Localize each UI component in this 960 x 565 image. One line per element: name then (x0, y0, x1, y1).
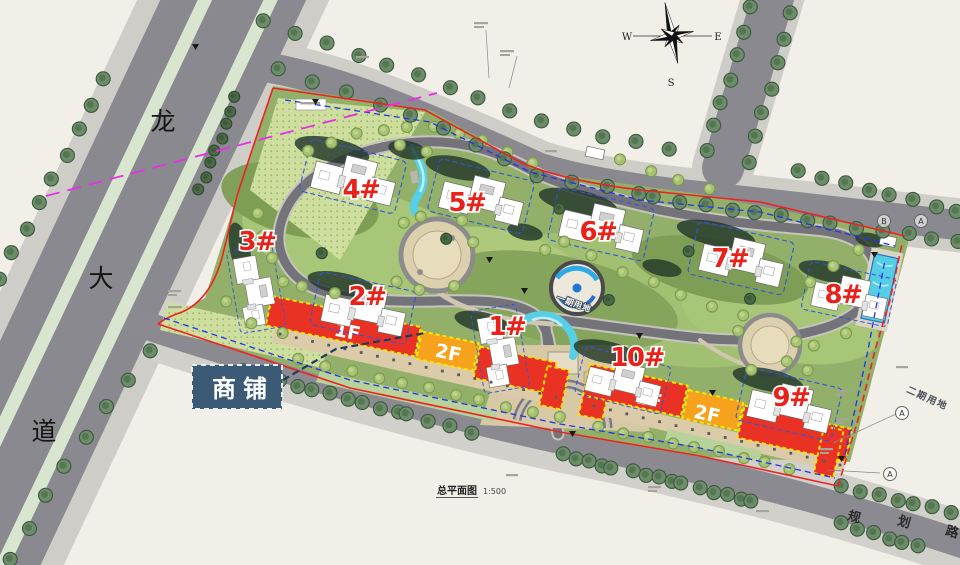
grid-marker-a3: A (887, 470, 893, 479)
compass-west-label: W (622, 32, 633, 43)
building-label-3: 3# (239, 227, 277, 257)
grid-marker-a2: A (899, 409, 905, 418)
grid-marker-a1: A (918, 217, 924, 226)
site-plan: 1F 2F 1F 2F (0, 0, 960, 565)
building-label-2: 2# (349, 282, 387, 312)
building-label-9: 9# (773, 383, 811, 413)
building-label-5: 5# (449, 188, 487, 218)
compass-south-label: S (668, 78, 675, 89)
west-avenue-char-2: 大 (88, 264, 113, 293)
building-label-4: 4# (343, 175, 381, 205)
scale-ratio: 1:500 (483, 487, 506, 496)
building-label-1: 1# (489, 312, 527, 342)
scale-title: 总平面图 (437, 484, 477, 497)
west-avenue-char-1: 龙 (150, 107, 175, 136)
building-label-10: 10# (610, 343, 664, 373)
scale-caption: 总平面图 1:500 (436, 484, 506, 498)
building-label-6: 6# (580, 217, 618, 247)
grid-marker-b: B (881, 217, 887, 226)
west-avenue-char-3: 道 (31, 417, 56, 446)
building-label-7: 7# (712, 244, 750, 274)
site-plan-canvas: 1F 2F 1F 2F (0, 0, 960, 565)
compass-east-label: E (714, 32, 721, 43)
shops-callout-label: 商铺 (212, 375, 274, 403)
building-label-8: 8# (825, 280, 863, 310)
